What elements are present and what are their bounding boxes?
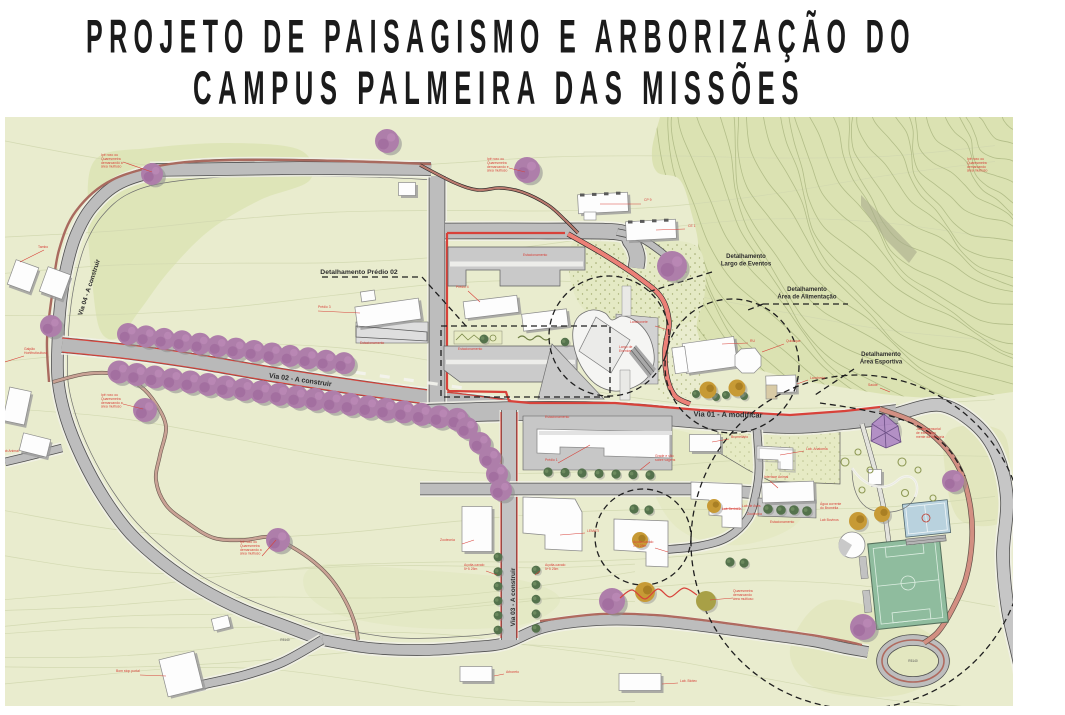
svg-text:Lab Animal: Lab Animal: [2, 449, 19, 453]
svg-text:Detalhamento Prédio 02: Detalhamento Prédio 02: [320, 269, 398, 276]
svg-text:Lab. Anatomia: Lab. Anatomia: [806, 447, 828, 451]
svg-text:CAMPUS PALMEIRA DAS MISSÕES: CAMPUS PALMEIRA DAS MISSÕES: [193, 61, 805, 114]
svg-text:Lancheria: Lancheria: [810, 376, 825, 380]
svg-text:Interface Animal: Interface Animal: [764, 475, 789, 479]
svg-text:Quaresmeirademarcandoárea mult: Quaresmeirademarcandoárea multiuso: [733, 589, 753, 601]
svg-text:R5140: R5140: [280, 638, 290, 642]
svg-text:Prédio 3: Prédio 3: [318, 305, 331, 309]
svg-text:Lanchonete: Lanchonete: [630, 320, 648, 324]
svg-text:Grade e vãosobre vagens: Grade e vãosobre vagens: [655, 454, 676, 462]
svg-text:CP 9: CP 9: [644, 198, 652, 202]
svg-text:DetalhamentoÁrea Esportiva: DetalhamentoÁrea Esportiva: [860, 352, 903, 366]
svg-text:Bromeliário: Bromeliário: [731, 435, 748, 439]
svg-text:Lab Bovinos: Lab Bovinos: [820, 518, 839, 522]
svg-text:Zootecnia: Zootecnia: [440, 538, 455, 542]
svg-text:Arboreto: Arboreto: [506, 670, 519, 674]
svg-text:Prédio 1: Prédio 1: [545, 458, 558, 462]
svg-text:RU: RU: [750, 339, 755, 343]
svg-text:Estacionamento: Estacionamento: [545, 415, 569, 419]
svg-text:PROJETO DE PAISAGISMO E ARBORI: PROJETO DE PAISAGISMO E ARBORIZAÇÃO DO: [86, 10, 916, 63]
svg-text:LEMATI: LEMATI: [587, 529, 599, 533]
svg-text:DetalhamentoLargo de Eventos: DetalhamentoLargo de Eventos: [721, 254, 772, 268]
svg-text:Saúde: Saúde: [868, 383, 878, 387]
svg-text:Via 01 - A modificar: Via 01 - A modificar: [694, 409, 763, 419]
svg-text:Estacionamento: Estacionamento: [770, 520, 794, 524]
svg-text:Via 03 - A construir: Via 03 - A construir: [510, 567, 517, 626]
svg-text:Lab de Aves: Lab de Aves: [742, 504, 761, 508]
svg-text:CE 1: CE 1: [688, 224, 696, 228]
svg-text:Largo deEventos: Largo deEventos: [619, 345, 632, 353]
svg-text:Bom stop portal: Bom stop portal: [116, 669, 140, 673]
svg-text:R5140: R5140: [908, 659, 918, 663]
svg-text:Lab Berbada: Lab Berbada: [722, 507, 742, 511]
svg-text:Zootecnia: Zootecnia: [747, 512, 762, 516]
svg-text:Quiosque: Quiosque: [786, 339, 801, 343]
svg-text:Prédio 4: Prédio 4: [456, 285, 469, 289]
svg-text:Estacionamento: Estacionamento: [523, 253, 547, 257]
svg-text:Lab. Biotec: Lab. Biotec: [680, 679, 697, 683]
svg-text:Tambo: Tambo: [38, 245, 48, 249]
svg-text:Estacionamento: Estacionamento: [458, 347, 482, 351]
svg-text:Estacionamento: Estacionamento: [360, 341, 384, 345]
